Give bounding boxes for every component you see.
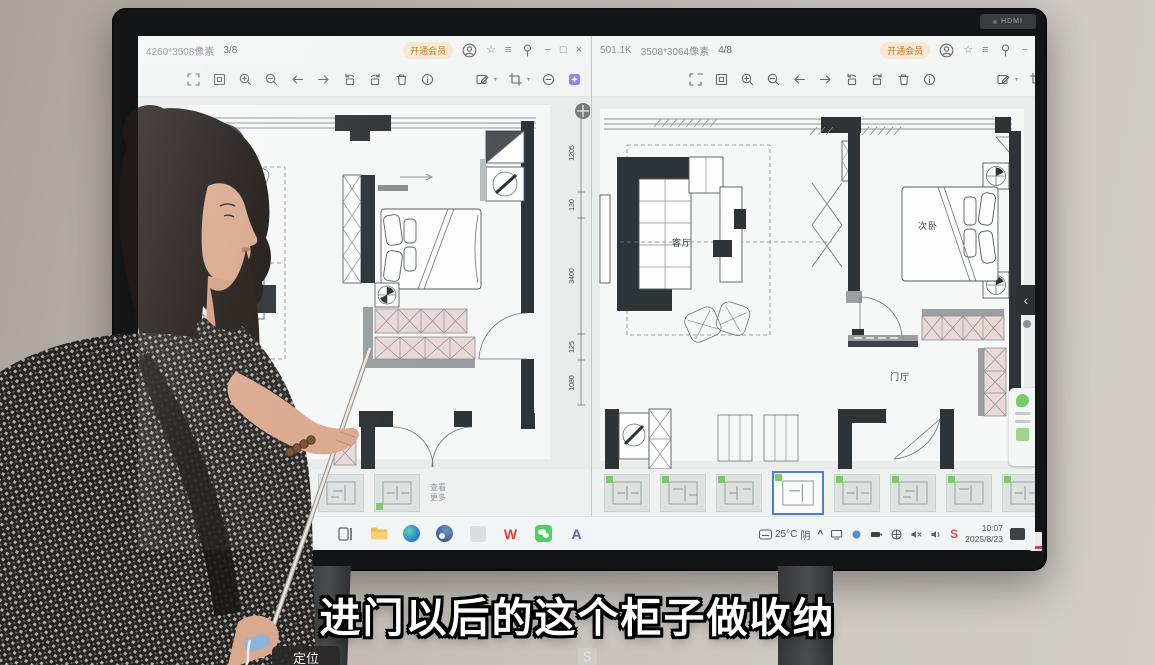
presenter <box>0 0 1155 665</box>
video-frame: HDMI 4260*3508像素 3/8 开通会员 ☆ ≡ − □ × <box>0 0 1155 665</box>
watermark-s: S <box>578 648 597 665</box>
video-subtitle: 进门以后的这个柜子做收纳 <box>320 584 836 644</box>
locate-label: 定位 <box>272 646 340 665</box>
